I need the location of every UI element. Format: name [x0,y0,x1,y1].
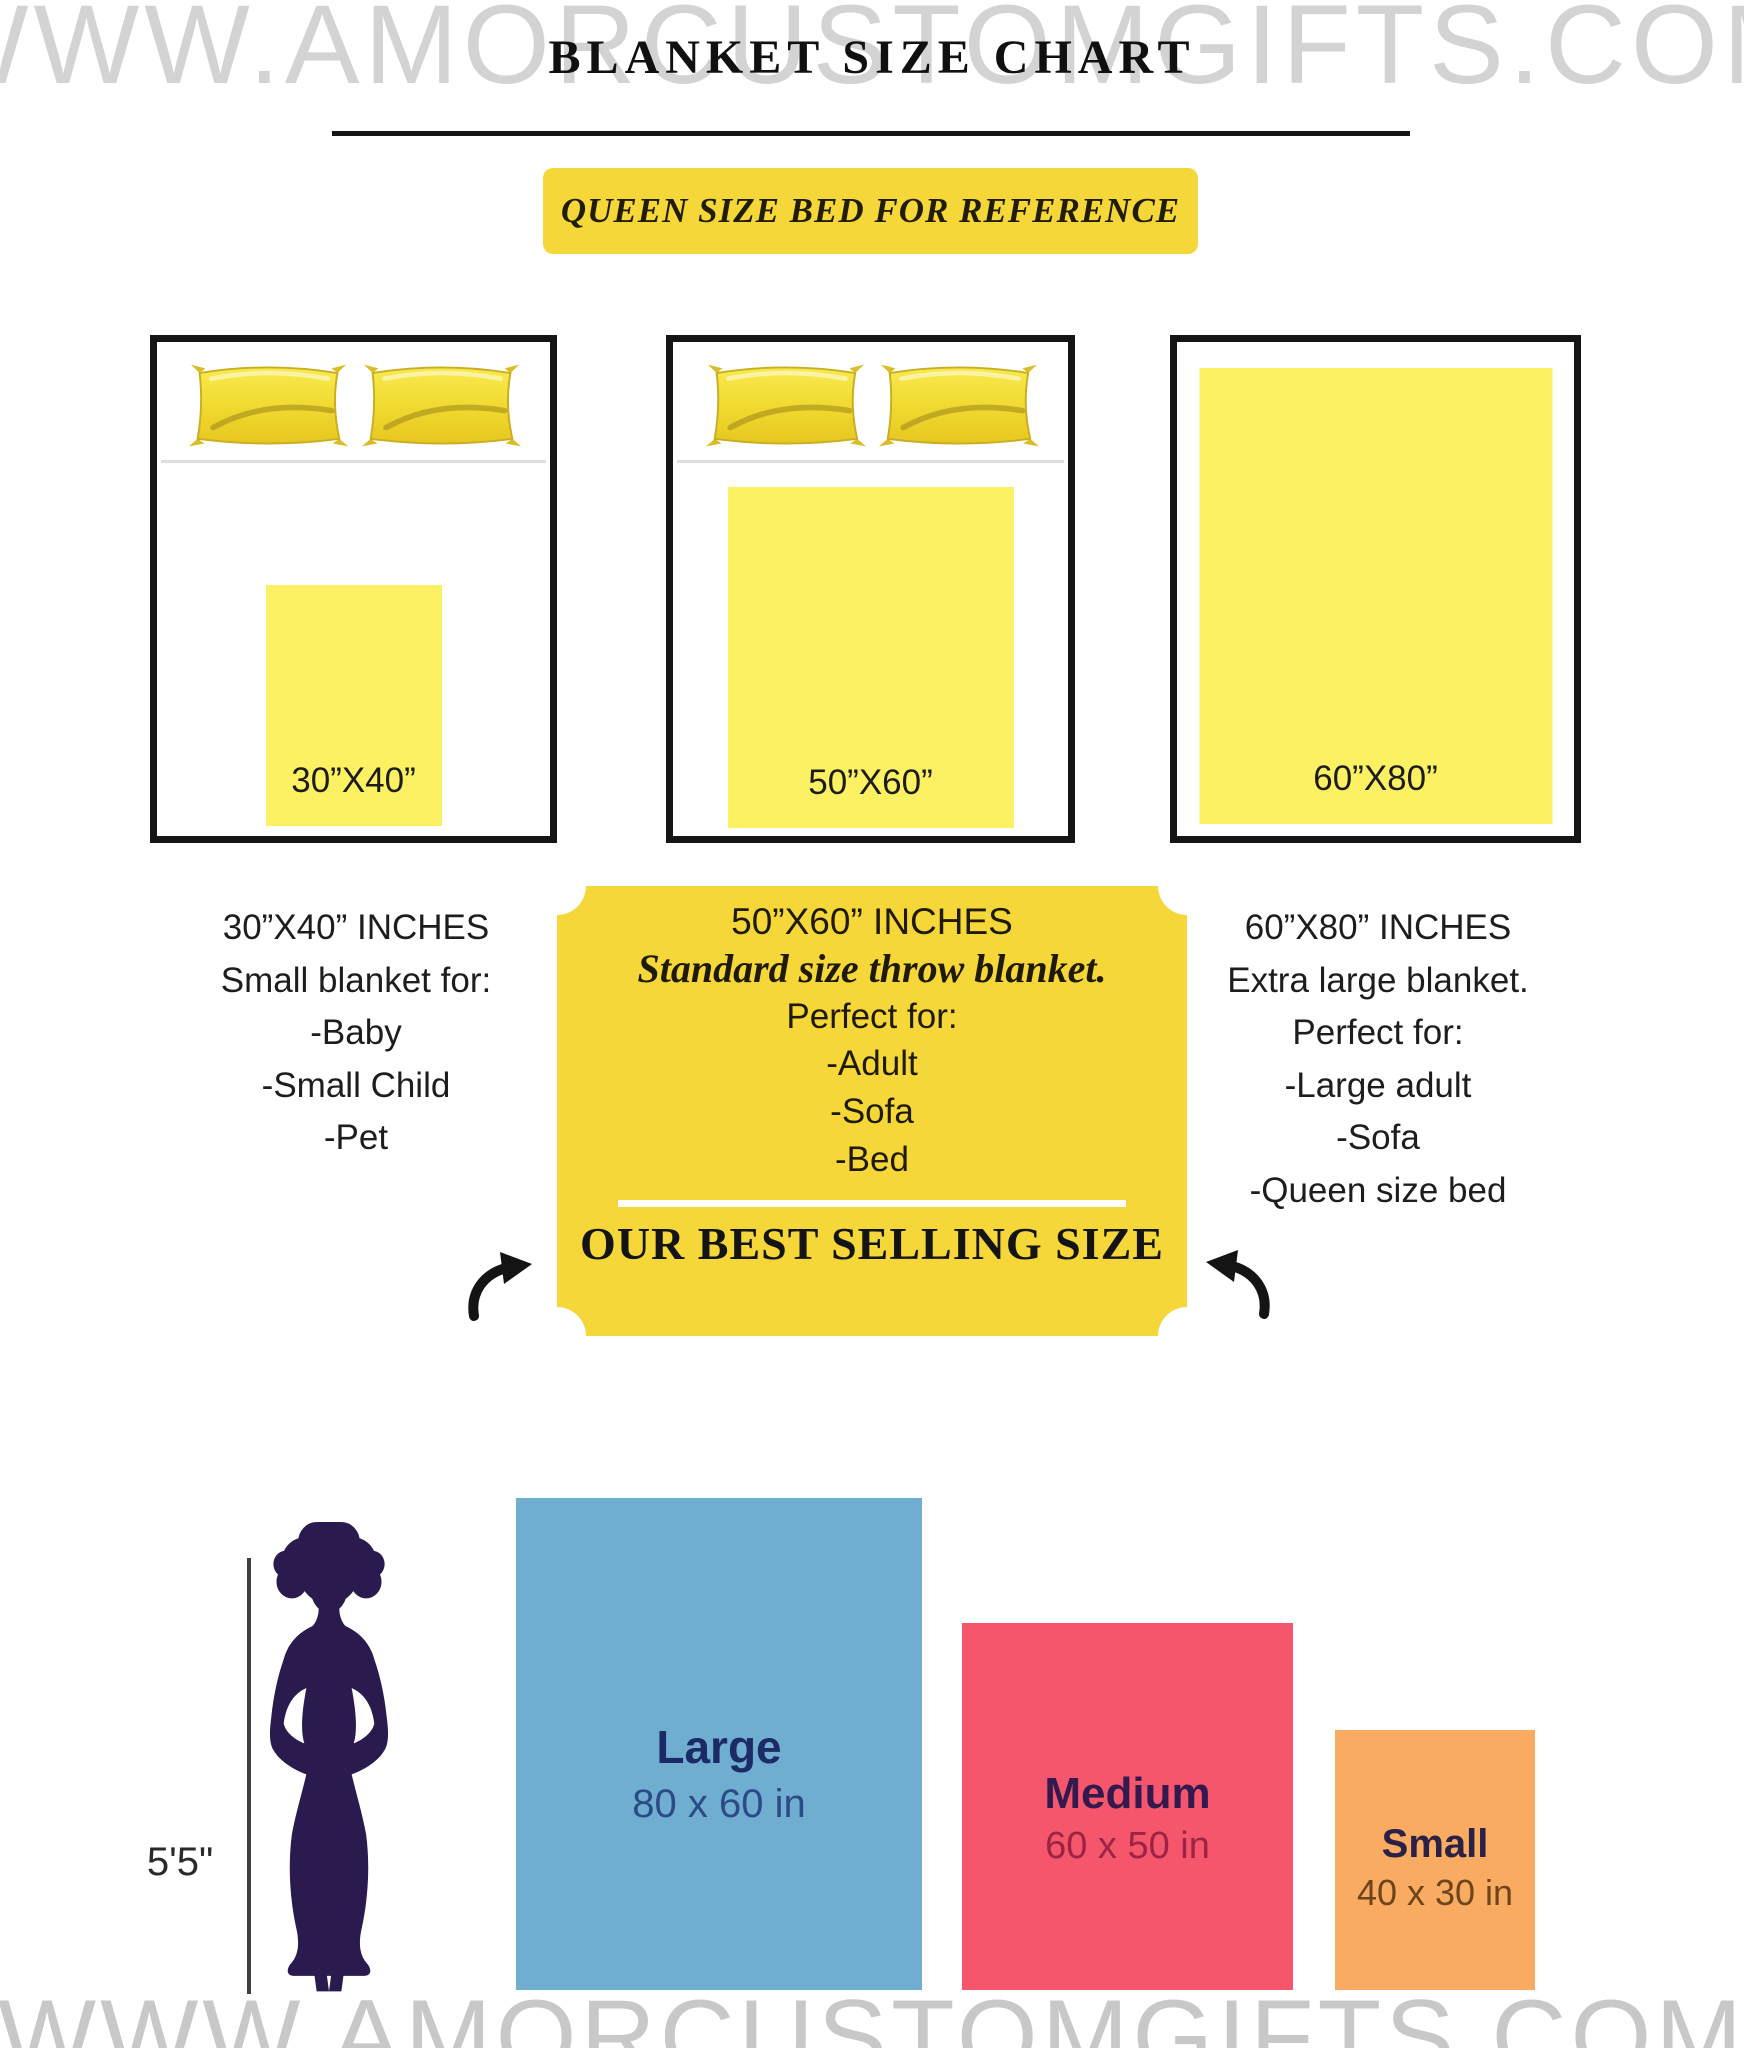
reference-banner-label: QUEEN SIZE BED FOR REFERENCE [561,191,1180,231]
plaque-subtitle: Standard size throw blanket. [637,944,1106,994]
bed-diagram-60x80: 60”X80” [1170,335,1581,843]
plaque-item: -Adult [826,1040,917,1088]
plaque-item: -Bed [835,1136,909,1184]
pillow-icon [876,358,1042,452]
reference-banner: QUEEN SIZE BED FOR REFERENCE [543,168,1198,254]
size-description-30x40: 30”X40” INCHES Small blanket for: -Baby … [140,902,572,1165]
best-selling-label: OUR BEST SELLING SIZE [580,1217,1164,1270]
blanket-size-label: 30”X40” [266,761,442,801]
size-line: Small blanket for: [140,955,572,1008]
size-bar-large: Large 80 x 60 in [516,1498,922,1990]
size-bar-name: Large [656,1720,781,1774]
size-line: -Baby [140,1007,572,1060]
size-description-60x80: 60”X80” INCHES Extra large blanket. Perf… [1168,902,1588,1217]
plaque-divider [618,1200,1126,1207]
plaque-item: -Sofa [830,1088,914,1136]
pillow-icon [186,358,351,452]
curved-arrow-right-icon [1198,1246,1278,1328]
best-selling-plaque: 50”X60” INCHES Standard size throw blank… [557,886,1187,1336]
pillow-icon [359,358,524,452]
size-bar-small: Small 40 x 30 in [1335,1730,1535,1990]
size-bar-dimensions: 40 x 30 in [1357,1872,1513,1914]
size-line: -Pet [140,1112,572,1165]
blanket-60x80: 60”X80” [1199,368,1552,824]
size-line: -Sofa [1168,1112,1588,1165]
blanket-size-chart-infographic: WWW.AMORCUSTOMGIFTS.COM BLANKET SIZE CHA… [0,0,1744,2048]
size-bar-name: Medium [1044,1769,1210,1819]
woman-silhouette [226,1522,432,1998]
pillow-icon [703,358,869,452]
height-label: 5'5" [128,1840,232,1885]
bed-diagram-30x40: 30”X40” [150,335,557,843]
size-bar-dimensions: 80 x 60 in [632,1782,805,1827]
watermark-bottom: WWW.AMORCUSTOMGIFTS.COM [0,1978,1744,2048]
blanket-50x60: 50”X60” [728,487,1014,828]
blanket-size-label: 50”X60” [728,763,1014,803]
plaque-size-title: 50”X60” INCHES [731,900,1013,944]
size-line: -Large adult [1168,1060,1588,1113]
bed-diagram-50x60: 50”X60” [666,335,1075,843]
size-line: 60”X80” INCHES [1168,902,1588,955]
plaque-perfect-for: Perfect for: [786,994,957,1040]
sheet-line [161,460,546,463]
size-bar-medium: Medium 60 x 50 in [962,1623,1293,1990]
size-bar-name: Small [1382,1822,1489,1867]
blanket-size-label: 60”X80” [1199,759,1552,799]
size-line: Extra large blanket. [1168,955,1588,1008]
sheet-line [677,460,1064,463]
size-line: Perfect for: [1168,1007,1588,1060]
page-title: BLANKET SIZE CHART [0,30,1744,85]
plaque-content: 50”X60” INCHES Standard size throw blank… [557,886,1187,1336]
title-underline [332,131,1410,136]
curved-arrow-left-icon [460,1248,540,1330]
size-line: -Small Child [140,1060,572,1113]
size-line: 30”X40” INCHES [140,902,572,955]
blanket-30x40: 30”X40” [266,585,442,826]
size-line: -Queen size bed [1168,1165,1588,1218]
size-bar-dimensions: 60 x 50 in [1045,1825,1210,1868]
